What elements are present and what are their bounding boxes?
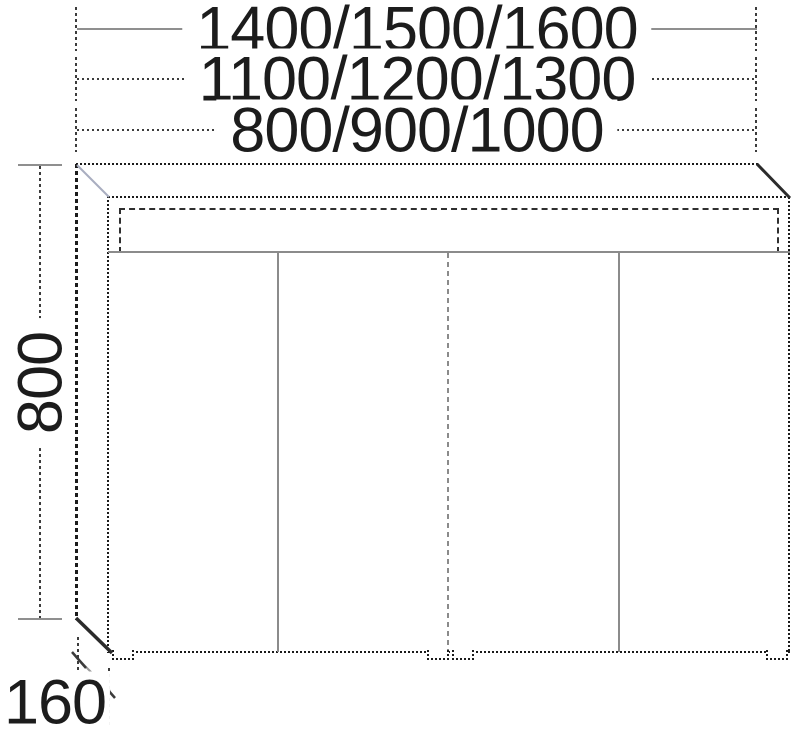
dim-label-height: 800 [10,318,73,448]
cabinet-top-left-depth-edge [77,165,109,197]
dim-tick-depth-back [72,652,86,668]
cabinet-front-left-edge [107,196,109,653]
dim-tick-height-bottom [18,618,62,620]
technical-drawing-canvas: 1400/1500/1600 1100/1200/1300 800/900/10… [0,0,792,742]
door-divider-1 [277,253,279,652]
door-divider-center [447,253,449,652]
cabinet-front-top-edge [108,196,790,198]
dim-label-depth: 160 [0,672,110,735]
cabinet-foot-left [112,650,134,660]
cabinet-foot-center-left [427,650,449,660]
cabinet-top-right-depth-edge [757,164,790,198]
doors-top-line [108,251,790,253]
dim-label-width-row3: 800/900/1000 [216,100,617,163]
door-divider-3 [618,253,620,652]
cabinet-foot-center-right [452,650,474,660]
cabinet-foot-right [766,650,788,660]
cabinet-front-bottom-edge [108,651,790,653]
cabinet-front-right-edge [788,197,790,653]
light-panel-dashed-outline [119,208,779,253]
